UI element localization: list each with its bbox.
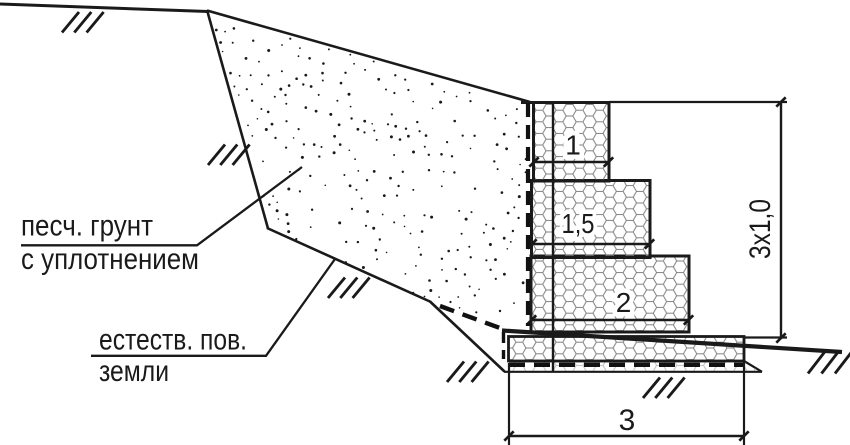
svg-text:1,5: 1,5 <box>562 208 595 239</box>
svg-text:2: 2 <box>616 287 632 318</box>
svg-text:3x1,0: 3x1,0 <box>744 199 777 259</box>
svg-text:земли: земли <box>99 355 169 388</box>
svg-text:3: 3 <box>619 404 636 437</box>
svg-text:естеств. пов.: естеств. пов. <box>99 324 247 357</box>
svg-text:песч. грунт: песч. грунт <box>21 210 153 243</box>
svg-text:с уплотнением: с уплотнением <box>21 243 199 276</box>
svg-text:1: 1 <box>565 130 581 161</box>
